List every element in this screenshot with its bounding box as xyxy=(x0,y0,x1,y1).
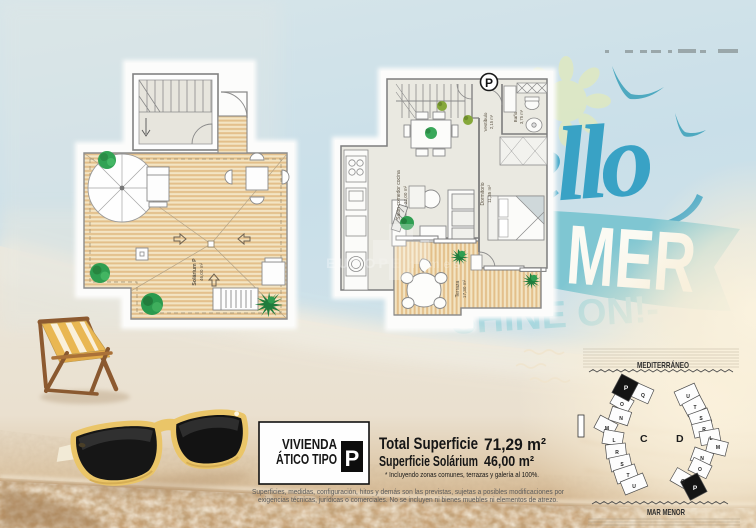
svg-text:O: O xyxy=(698,467,702,473)
svg-text:homes: homes xyxy=(408,257,464,271)
svg-text:2,15 m²: 2,15 m² xyxy=(489,114,494,129)
svg-text:3,75 m²: 3,75 m² xyxy=(519,109,524,124)
svg-text:Q: Q xyxy=(681,479,685,485)
svg-text:Superficies, medidas, configur: Superficies, medidas, configuración, hit… xyxy=(252,489,565,496)
svg-text:11,35 m²: 11,35 m² xyxy=(487,185,492,203)
svg-text:U: U xyxy=(632,484,636,490)
svg-text:P: P xyxy=(624,385,629,392)
svg-text:N: N xyxy=(700,456,704,462)
svg-text:P: P xyxy=(693,485,698,492)
svg-text:L: L xyxy=(709,436,712,442)
svg-text:Terraza: Terraza xyxy=(455,280,461,297)
svg-text:Solárium P: Solárium P xyxy=(192,258,198,286)
svg-text:MAR MENOR: MAR MENOR xyxy=(647,507,685,517)
svg-text:Dormitorio: Dormitorio xyxy=(480,182,486,205)
svg-text:R: R xyxy=(702,427,706,433)
svg-text:ÁTICO TIPO: ÁTICO TIPO xyxy=(276,451,337,468)
svg-text:17,30 m²: 17,30 m² xyxy=(462,279,467,298)
svg-text:T: T xyxy=(626,473,629,479)
svg-text:EUROPE: EUROPE xyxy=(326,255,403,271)
svg-text:* Incluyendo zonas comunes, te: * Incluyendo zonas comunes, terrazas y g… xyxy=(385,472,539,479)
svg-text:Superficie Solárium: Superficie Solárium xyxy=(379,454,478,470)
svg-text:Vestíbulo: Vestíbulo xyxy=(483,112,488,131)
svg-text:N: N xyxy=(619,416,623,422)
svg-text:exigencias técnicas, jurídicas: exigencias técnicas, jurídicas o comerci… xyxy=(258,497,558,504)
svg-text:P: P xyxy=(485,76,493,90)
svg-text:M: M xyxy=(605,426,609,432)
svg-text:O: O xyxy=(620,402,624,408)
svg-text:22,00 m²: 22,00 m² xyxy=(403,185,408,204)
svg-text:46,00 m²: 46,00 m² xyxy=(484,454,534,470)
svg-text:C: C xyxy=(640,433,648,445)
svg-text:MEDITERRÁNEO: MEDITERRÁNEO xyxy=(637,359,689,370)
svg-text:Baño: Baño xyxy=(513,111,518,122)
svg-text:M: M xyxy=(716,445,720,451)
svg-text:L: L xyxy=(612,438,615,444)
svg-text:R: R xyxy=(615,450,619,456)
svg-text:U: U xyxy=(686,394,690,400)
svg-text:Total Superficie: Total Superficie xyxy=(379,435,478,453)
svg-text:T: T xyxy=(693,405,696,411)
svg-text:Salón comedor cocina: Salón comedor cocina xyxy=(396,170,402,220)
svg-text:71,29 m²: 71,29 m² xyxy=(484,435,546,454)
svg-text:Q: Q xyxy=(641,393,645,399)
svg-text:P: P xyxy=(345,446,360,471)
svg-text:46,00 m²: 46,00 m² xyxy=(199,262,204,281)
svg-text:D: D xyxy=(676,433,684,445)
